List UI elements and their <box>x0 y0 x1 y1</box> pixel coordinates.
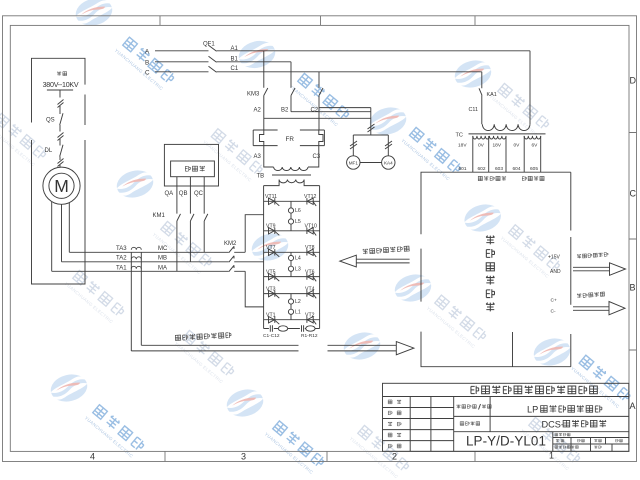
svg-text:KA1: KA1 <box>487 92 497 98</box>
svg-text:QA: QA <box>165 191 174 197</box>
svg-text:601: 601 <box>459 166 467 172</box>
svg-text:B: B <box>630 283 636 293</box>
svg-text:C: C <box>145 70 150 77</box>
svg-text:QS: QS <box>46 117 55 123</box>
svg-text:DL: DL <box>45 148 53 154</box>
svg-text:LP-Y/D-YL01: LP-Y/D-YL01 <box>466 434 546 449</box>
svg-text:18V: 18V <box>493 143 502 149</box>
svg-text:B2: B2 <box>281 107 289 113</box>
svg-text:+15V: +15V <box>548 255 560 261</box>
svg-text:QF1: QF1 <box>203 41 215 47</box>
svg-text:L5: L5 <box>295 219 301 225</box>
svg-text:3: 3 <box>241 452 246 462</box>
svg-text:A3: A3 <box>254 154 262 160</box>
svg-text:L6: L6 <box>295 208 301 214</box>
svg-text:QB: QB <box>179 191 188 197</box>
svg-text:VT12: VT12 <box>304 194 317 200</box>
svg-text:605: 605 <box>530 166 538 172</box>
svg-text:D: D <box>630 76 637 86</box>
svg-text:MC: MC <box>158 246 168 252</box>
svg-text:MF1: MF1 <box>349 161 359 166</box>
svg-text:604: 604 <box>513 166 521 172</box>
svg-text:TA1: TA1 <box>116 265 127 271</box>
svg-text:MA: MA <box>158 265 167 271</box>
svg-text:KM1: KM1 <box>153 213 166 219</box>
svg-text:C3: C3 <box>313 154 321 160</box>
svg-text:18V: 18V <box>458 143 467 149</box>
svg-text:6V: 6V <box>532 143 539 149</box>
svg-text:QC: QC <box>194 191 204 197</box>
svg-text:AND: AND <box>550 269 561 275</box>
svg-text:TA3: TA3 <box>116 246 127 252</box>
svg-text:603: 603 <box>495 166 503 172</box>
svg-text:4: 4 <box>90 452 95 462</box>
svg-text:B: B <box>145 60 149 67</box>
svg-text:1: 1 <box>549 451 554 461</box>
svg-text:TA2: TA2 <box>116 256 127 262</box>
svg-text:C1: C1 <box>231 66 239 72</box>
svg-text:MB: MB <box>158 256 167 262</box>
svg-text:M: M <box>54 176 69 196</box>
svg-text:L4: L4 <box>295 256 301 262</box>
svg-text:C: C <box>630 189 637 199</box>
svg-text:2: 2 <box>392 452 397 462</box>
svg-text:KA4: KA4 <box>384 161 393 166</box>
svg-text:R1-R12: R1-R12 <box>301 333 318 339</box>
svg-text:A: A <box>630 401 636 411</box>
svg-text:C2: C2 <box>311 107 319 113</box>
svg-text:C-: C- <box>551 309 556 315</box>
svg-text:KM2: KM2 <box>224 241 237 247</box>
svg-text:C11: C11 <box>469 107 479 113</box>
svg-text:A1: A1 <box>231 46 239 52</box>
svg-text:DCS-: DCS- <box>542 419 564 429</box>
svg-text:L3: L3 <box>295 267 301 273</box>
svg-text:A2: A2 <box>254 107 262 113</box>
svg-text:380V--10KV: 380V--10KV <box>43 81 79 89</box>
svg-text:C1-C12: C1-C12 <box>263 333 280 339</box>
svg-text:KM3: KM3 <box>247 91 260 97</box>
svg-text:C+: C+ <box>551 298 557 304</box>
svg-text:TB: TB <box>257 174 265 180</box>
svg-text:0V: 0V <box>478 143 485 149</box>
svg-text:B1: B1 <box>231 57 239 63</box>
svg-text:0V: 0V <box>514 143 521 149</box>
svg-text:602: 602 <box>478 166 486 172</box>
svg-text:L2: L2 <box>295 299 301 305</box>
svg-text:TC: TC <box>456 132 463 138</box>
svg-text:FR: FR <box>286 136 295 143</box>
svg-text:LP: LP <box>527 405 538 415</box>
svg-text:L1: L1 <box>295 310 301 316</box>
